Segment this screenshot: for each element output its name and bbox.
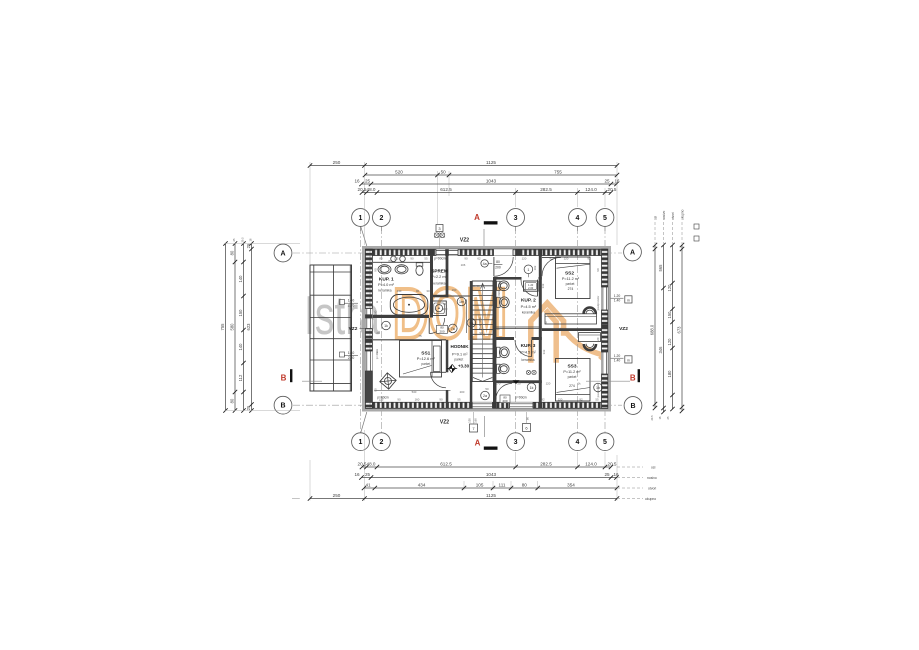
svg-text:80: 80 <box>230 250 235 255</box>
svg-text:25: 25 <box>246 405 251 410</box>
svg-text:keramika: keramika <box>522 310 535 314</box>
svg-text:25: 25 <box>246 243 251 248</box>
svg-text:200: 200 <box>502 399 507 403</box>
svg-text:90: 90 <box>416 289 420 293</box>
svg-text:50: 50 <box>485 387 489 391</box>
svg-text:VZ2: VZ2 <box>460 238 469 244</box>
svg-text:200: 200 <box>460 390 465 394</box>
svg-text:150: 150 <box>468 418 472 423</box>
svg-text:1k: 1k <box>530 386 534 390</box>
svg-text:25: 25 <box>604 472 610 477</box>
svg-text:41: 41 <box>365 482 371 487</box>
svg-text:16: 16 <box>614 178 620 183</box>
svg-text:P=9.1 m²: P=9.1 m² <box>452 352 468 356</box>
svg-text:755: 755 <box>554 169 562 174</box>
svg-text:16x17.5/29: 16x17.5/29 <box>478 317 482 330</box>
svg-text:ukupno: ukupno <box>680 209 684 220</box>
svg-text:predprostor: predprostor <box>596 296 600 311</box>
svg-text:25: 25 <box>604 178 610 183</box>
svg-text:332: 332 <box>542 349 546 354</box>
svg-text:20.5: 20.5 <box>608 187 617 192</box>
svg-text:otvori: otvori <box>671 212 675 220</box>
svg-text:16: 16 <box>354 472 360 477</box>
svg-text:55: 55 <box>424 257 428 261</box>
svg-text:25: 25 <box>365 472 371 477</box>
svg-text:m: m <box>627 358 630 362</box>
svg-text:1: 1 <box>527 268 529 272</box>
svg-text:346: 346 <box>658 346 663 354</box>
svg-text:90: 90 <box>496 327 500 331</box>
svg-text:120: 120 <box>558 397 563 401</box>
svg-text:B: B <box>280 403 285 410</box>
svg-text:keramika: keramika <box>433 281 446 285</box>
svg-text:A: A <box>630 250 635 257</box>
svg-text:SS2: SS2 <box>565 271 574 277</box>
svg-text:parket: parket <box>566 282 575 286</box>
svg-text:48.0: 48.0 <box>367 187 376 192</box>
svg-text:274: 274 <box>569 384 575 388</box>
svg-text:90: 90 <box>374 388 378 392</box>
svg-text:4: 4 <box>576 215 580 222</box>
svg-text:332: 332 <box>541 283 545 288</box>
svg-text:354: 354 <box>567 482 575 487</box>
svg-text:5: 5 <box>603 215 607 222</box>
svg-text:+3.30: +3.30 <box>458 363 470 368</box>
svg-text:2: 2 <box>379 215 383 222</box>
svg-text:200: 200 <box>443 307 448 311</box>
svg-text:p=90cm: p=90cm <box>515 396 527 400</box>
svg-text:VZ2: VZ2 <box>619 326 628 332</box>
svg-text:80: 80 <box>496 260 500 264</box>
svg-text:nosivo: nosivo <box>647 476 657 480</box>
svg-text:120: 120 <box>667 284 672 292</box>
svg-text:20.5: 20.5 <box>608 461 617 466</box>
svg-text:124.0: 124.0 <box>585 187 597 192</box>
svg-text:111: 111 <box>499 482 506 487</box>
svg-text:80: 80 <box>388 259 392 263</box>
svg-text:90: 90 <box>439 397 443 401</box>
svg-text:4: 4 <box>576 439 580 446</box>
svg-text:80: 80 <box>230 398 235 403</box>
svg-text:612.5: 612.5 <box>440 461 452 466</box>
svg-text:140: 140 <box>374 310 378 315</box>
svg-text:1m: 1m <box>459 300 464 304</box>
svg-text:530: 530 <box>412 390 417 394</box>
svg-text:25: 25 <box>365 178 371 183</box>
svg-text:688.0: 688.0 <box>650 324 655 335</box>
svg-text:A: A <box>475 439 481 448</box>
svg-text:m: m <box>627 298 630 302</box>
svg-text:612.5: 612.5 <box>440 187 452 192</box>
svg-text:osi: osi <box>653 216 657 220</box>
svg-text:KUP. 3: KUP. 3 <box>521 343 536 349</box>
svg-text:1.40: 1.40 <box>614 359 621 363</box>
svg-text:755: 755 <box>220 323 225 331</box>
svg-text:P=12.6 m²: P=12.6 m² <box>417 356 436 361</box>
svg-text:80: 80 <box>443 302 447 306</box>
svg-text:keramika: keramika <box>379 288 392 292</box>
svg-text:KUP. 2: KUP. 2 <box>521 298 536 304</box>
svg-text:80: 80 <box>522 482 528 487</box>
svg-text:30: 30 <box>426 289 430 293</box>
svg-text:1.20: 1.20 <box>528 283 534 287</box>
svg-text:1k: 1k <box>384 324 388 328</box>
svg-text:otvori: otvori <box>648 487 657 491</box>
svg-text:parket: parket <box>421 362 430 366</box>
svg-text:3: 3 <box>514 439 518 446</box>
svg-text:120: 120 <box>546 382 551 386</box>
svg-text:9a: 9a <box>469 321 473 325</box>
svg-text:2.00: 2.00 <box>528 286 534 290</box>
svg-text:124.0: 124.0 <box>585 461 597 466</box>
svg-text:190: 190 <box>452 288 457 292</box>
svg-text:90: 90 <box>374 268 378 272</box>
svg-text:240: 240 <box>397 289 402 293</box>
svg-text:SPREM: SPREM <box>431 268 448 273</box>
svg-text:565: 565 <box>658 264 663 272</box>
svg-text:250: 250 <box>333 493 341 498</box>
svg-text:180: 180 <box>667 370 672 378</box>
svg-text:120: 120 <box>564 257 569 261</box>
svg-text:125: 125 <box>379 397 384 401</box>
svg-text:140: 140 <box>238 343 243 351</box>
svg-text:VZ2: VZ2 <box>349 326 358 332</box>
svg-text:282.5: 282.5 <box>540 187 552 192</box>
svg-text:20.5: 20.5 <box>358 461 367 466</box>
svg-text:200: 200 <box>439 329 444 333</box>
svg-text:125: 125 <box>394 257 399 261</box>
svg-text:92: 92 <box>579 397 583 401</box>
svg-text:92: 92 <box>549 257 553 261</box>
svg-text:580: 580 <box>230 323 235 331</box>
svg-text:99: 99 <box>544 321 548 325</box>
svg-text:nosivo: nosivo <box>662 211 666 220</box>
svg-text:112: 112 <box>238 374 243 381</box>
svg-text:20: 20 <box>376 331 380 335</box>
svg-text:1043: 1043 <box>486 472 497 477</box>
svg-text:1.40: 1.40 <box>348 351 355 355</box>
svg-text:1.20: 1.20 <box>614 354 621 358</box>
svg-text:120: 120 <box>667 338 672 346</box>
svg-text:150: 150 <box>238 309 243 317</box>
svg-text:2.20: 2.20 <box>348 303 355 307</box>
svg-text:HODNIK: HODNIK <box>450 344 469 349</box>
svg-text:92: 92 <box>541 397 545 401</box>
svg-text:osi: osi <box>651 466 656 470</box>
svg-text:20: 20 <box>517 382 521 386</box>
svg-text:250: 250 <box>333 160 341 165</box>
svg-text:1125: 1125 <box>486 493 496 498</box>
svg-text:20.5: 20.5 <box>650 415 654 421</box>
svg-text:P=11.2 m²: P=11.2 m² <box>563 370 581 374</box>
svg-text:90: 90 <box>596 268 600 272</box>
svg-text:120: 120 <box>596 337 600 342</box>
svg-text:3: 3 <box>514 215 518 222</box>
svg-text:keramika: keramika <box>522 358 535 362</box>
svg-text:282.5: 282.5 <box>540 461 552 466</box>
svg-text:1.40: 1.40 <box>614 299 621 303</box>
svg-text:160: 160 <box>474 418 478 423</box>
svg-text:P=11.2 m²: P=11.2 m² <box>562 277 580 281</box>
svg-text:50: 50 <box>441 169 447 174</box>
svg-text:1: 1 <box>359 215 363 222</box>
svg-text:90: 90 <box>397 397 401 401</box>
svg-text:92: 92 <box>587 257 591 261</box>
svg-text:P=4.5 m²: P=4.5 m² <box>521 305 537 309</box>
svg-text:B: B <box>630 403 635 410</box>
svg-text:2a: 2a <box>483 394 487 398</box>
svg-text:1: 1 <box>359 439 363 446</box>
svg-text:62: 62 <box>477 257 481 261</box>
svg-text:434: 434 <box>418 482 426 487</box>
svg-text:160: 160 <box>415 397 420 401</box>
svg-text:150: 150 <box>667 311 672 319</box>
svg-text:120: 120 <box>522 257 527 261</box>
svg-text:170: 170 <box>496 382 501 386</box>
svg-text:623: 623 <box>246 323 251 331</box>
svg-text:16: 16 <box>354 178 360 183</box>
svg-text:190: 190 <box>497 291 501 296</box>
svg-text:140: 140 <box>238 275 243 283</box>
svg-text:16: 16 <box>613 472 619 477</box>
svg-text:1.20: 1.20 <box>614 294 621 298</box>
svg-text:SS3: SS3 <box>567 364 576 370</box>
svg-text:80: 80 <box>526 417 530 421</box>
svg-text:102: 102 <box>533 265 537 270</box>
svg-text:VZ2: VZ2 <box>440 420 449 426</box>
svg-text:75: 75 <box>418 334 422 338</box>
svg-text:200: 200 <box>495 265 501 269</box>
svg-text:ukupno: ukupno <box>645 497 656 501</box>
svg-text:90: 90 <box>464 257 468 261</box>
svg-text:5: 5 <box>603 439 607 446</box>
svg-text:7a: 7a <box>451 327 455 331</box>
svg-text:p=40cm: p=40cm <box>375 348 379 359</box>
svg-text:parket: parket <box>454 358 463 362</box>
svg-text:p=90cm: p=90cm <box>434 256 446 260</box>
svg-text:parket: parket <box>568 375 577 379</box>
svg-text:4a: 4a <box>483 262 487 266</box>
svg-text:106: 106 <box>461 263 466 267</box>
svg-text:274: 274 <box>568 287 574 291</box>
svg-text:520: 520 <box>395 169 403 174</box>
svg-text:80: 80 <box>379 257 383 261</box>
svg-text:673: 673 <box>677 326 682 334</box>
svg-text:20.5: 20.5 <box>358 187 367 192</box>
svg-text:105: 105 <box>476 482 484 487</box>
svg-text:P=4.0 m²: P=4.0 m² <box>378 282 395 287</box>
svg-text:90: 90 <box>479 331 483 335</box>
svg-text:predprostor: predprostor <box>596 383 600 398</box>
svg-text:48.0: 48.0 <box>367 461 376 466</box>
svg-text:2.20: 2.20 <box>348 356 355 360</box>
svg-text:P=4.5 m²: P=4.5 m² <box>520 351 536 355</box>
svg-text:1043: 1043 <box>486 178 497 183</box>
svg-text:1125: 1125 <box>486 160 496 165</box>
svg-text:P=2.2 m²: P=2.2 m² <box>431 275 447 279</box>
svg-text:A: A <box>280 251 285 258</box>
svg-text:2: 2 <box>379 439 383 446</box>
svg-text:20.5: 20.5 <box>241 237 245 243</box>
svg-text:55: 55 <box>457 397 461 401</box>
svg-text:A: A <box>474 213 480 222</box>
svg-text:B: B <box>281 374 287 383</box>
svg-text:1.40: 1.40 <box>348 299 355 303</box>
svg-text:90: 90 <box>410 257 414 261</box>
svg-text:B: B <box>630 373 636 382</box>
svg-text:30 30: 30 30 <box>472 284 480 288</box>
